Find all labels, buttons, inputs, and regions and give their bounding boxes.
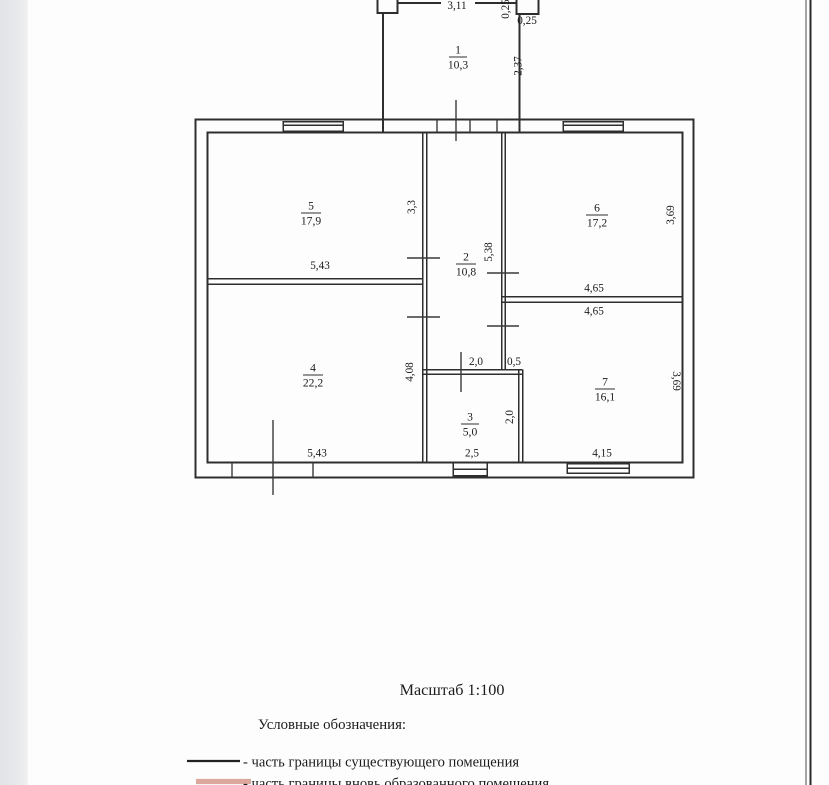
dim-room7-width-top: 4,65 xyxy=(584,306,604,318)
interior-walls xyxy=(208,133,683,463)
dim-wall-offset: 0,5 xyxy=(507,356,521,368)
dim-pier-height: 0,25 xyxy=(500,0,512,19)
room-label-1: 1 10,3 xyxy=(448,44,468,72)
dim-room4-width: 5,43 xyxy=(307,448,327,460)
dim-room7-width: 4,15 xyxy=(592,448,612,460)
room-1-number: 1 xyxy=(455,44,461,57)
dim-room3-width: 2,5 xyxy=(465,448,479,460)
room-3-number: 3 xyxy=(467,411,473,424)
room-2-area: 10,8 xyxy=(456,266,476,279)
room-3-area: 5,0 xyxy=(463,426,478,439)
dim-room3-depth: 2,0 xyxy=(504,410,516,424)
room-7-area: 16,1 xyxy=(595,391,615,404)
legend-existing-boundary-label: - часть границы существующего помещения xyxy=(243,755,519,771)
room-6-number: 6 xyxy=(594,202,600,215)
legend-title: Условные обозначения: xyxy=(258,717,406,733)
room-7-number: 7 xyxy=(602,376,608,389)
window-room7-bottom xyxy=(567,464,629,474)
room-labels: 1 10,3 2 10,8 3 5,0 4 22,2 5 xyxy=(301,44,615,439)
legend-item-existing-boundary: - часть границы существующего помещения xyxy=(187,755,519,771)
room-4-area: 22,2 xyxy=(303,377,323,390)
room-label-2: 2 10,8 xyxy=(456,251,476,279)
dim-room1-width: 3,11 xyxy=(447,0,466,12)
legend-item-new-boundary: - часть границы вновь образованного поме… xyxy=(196,776,549,785)
building-outer-walls xyxy=(196,120,694,478)
room-2-number: 2 xyxy=(463,251,469,264)
window-symbols xyxy=(283,122,629,476)
legend-new-boundary-label: - часть границы вновь образованного поме… xyxy=(243,776,549,785)
dim-room7-depth: 3,69 xyxy=(670,371,682,391)
scale-label: Масштаб 1:100 xyxy=(400,681,505,699)
dim-room6-depth: 3,69 xyxy=(665,205,677,225)
opening-room3-bottom xyxy=(453,463,487,476)
room-label-3: 3 5,0 xyxy=(461,411,479,439)
page-right-edge xyxy=(806,0,811,785)
dim-room5-width: 5,43 xyxy=(310,260,330,272)
room-5-area: 17,9 xyxy=(301,215,321,228)
room-1-area: 10,3 xyxy=(448,59,468,72)
dim-room6-width: 4,65 xyxy=(584,283,604,295)
room-label-5: 5 17,9 xyxy=(301,200,321,228)
dim-corridor-depth: 5,38 xyxy=(483,242,495,262)
dim-room5-depth: 3,3 xyxy=(406,200,418,214)
window-room5-top xyxy=(283,122,343,131)
room-6-area: 17,2 xyxy=(587,217,607,230)
dim-pier-width: 0,25 xyxy=(517,15,537,27)
floorplan-drawing: 1 10,3 2 10,8 3 5,0 4 22,2 5 xyxy=(0,0,829,785)
footer-text: Масштаб 1:100 Условные обозначения: - ча… xyxy=(187,681,549,785)
dim-room3-width-top: 2,0 xyxy=(469,356,483,368)
room-label-4: 4 22,2 xyxy=(303,362,323,390)
room-label-6: 6 17,2 xyxy=(586,202,608,230)
dim-room4-depth: 4,08 xyxy=(404,362,416,382)
dimension-labels: 3,11 0,25 5,43 4,65 4,65 2,0 0,5 5,43 2,… xyxy=(307,0,682,460)
window-room6-top xyxy=(563,122,623,131)
dim-room1-depth: 2,37 xyxy=(513,56,525,76)
room-5-number: 5 xyxy=(308,200,314,213)
vestibule-pier-left xyxy=(378,0,398,13)
room-label-7: 7 16,1 xyxy=(595,376,615,404)
vestibule-pier-right xyxy=(517,0,539,14)
scanned-document-page: 1 10,3 2 10,8 3 5,0 4 22,2 5 xyxy=(0,0,829,785)
room-4-number: 4 xyxy=(310,362,316,375)
